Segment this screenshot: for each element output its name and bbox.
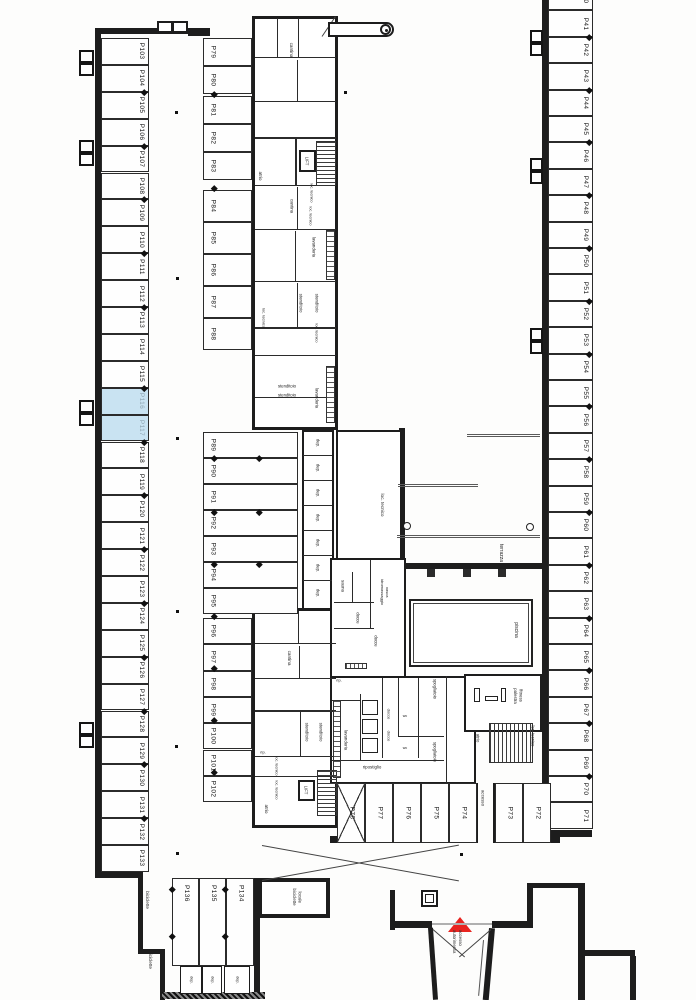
stall-P65[interactable]: P65: [548, 644, 593, 670]
stall-label: P126: [138, 662, 145, 679]
stall-P57[interactable]: P57: [548, 433, 593, 459]
room-label-rip-2: rip.: [260, 751, 266, 756]
stall-label: P43: [582, 70, 589, 83]
partition-line: [298, 611, 299, 644]
stall-P113[interactable]: P113: [101, 307, 149, 334]
stall-P118[interactable]: P118: [101, 442, 149, 469]
wall-pilaster: [530, 328, 543, 341]
stall-label: P115: [138, 366, 145, 382]
stall-label: P64: [582, 624, 589, 637]
stall-P61[interactable]: P61: [548, 538, 593, 564]
stall-P76[interactable]: P76: [393, 783, 421, 843]
stall-label: P83: [209, 160, 216, 173]
partition-line: [334, 602, 374, 603]
room-label-stenditoio-5: stenditoio: [304, 723, 309, 742]
wall-pilaster: [530, 341, 543, 354]
partition-line: [255, 355, 336, 356]
stall-label: P44: [582, 96, 589, 109]
stall-label: P75: [432, 807, 439, 820]
room-outline: [336, 430, 402, 565]
room-label-docce-4: docce: [386, 731, 391, 742]
stall-P111[interactable]: P111: [101, 253, 149, 280]
stall-P62[interactable]: P62: [548, 565, 593, 591]
partition-line: [334, 628, 374, 629]
storage-label: dep.: [315, 539, 320, 547]
room-label-biciclette-2: biciclette: [147, 951, 153, 969]
stall-label: P98: [209, 677, 216, 690]
stall-P84[interactable]: P84: [203, 190, 252, 222]
stairs: [489, 723, 533, 763]
room-label-biciclette-1: biciclette: [144, 891, 150, 909]
wall-pilaster: [79, 50, 94, 63]
stall-label: P85: [209, 232, 216, 245]
room-label-rip-1: rip.: [336, 679, 342, 684]
stall-label: P127: [138, 689, 145, 706]
partition-line: [446, 676, 447, 784]
partition-line: [303, 505, 332, 506]
room-label-loc-tecnico-8: loc. tecnico: [314, 324, 319, 343]
stall-label: P60: [582, 519, 589, 532]
stall-P90[interactable]: P90: [203, 458, 298, 484]
stall-P46[interactable]: P46: [548, 142, 593, 168]
stall-label: P80: [209, 74, 216, 87]
stall-label: P136: [182, 885, 189, 902]
stairs: [316, 141, 336, 186]
stall-P82[interactable]: P82: [203, 124, 252, 152]
stall-label: P119: [138, 474, 145, 490]
room-label-stenditoio-4: stenditoio: [278, 392, 296, 397]
stall-P96[interactable]: P96: [203, 618, 252, 644]
shelving: [326, 230, 335, 280]
stall-label: P93: [209, 543, 216, 556]
room-label-fitness: fitness palestra: [513, 688, 524, 704]
stall-label: P116: [138, 393, 145, 409]
terrace-railing: [398, 484, 478, 487]
room-label-cantina-2: cantina: [286, 651, 292, 666]
storage-label: dep.: [315, 589, 320, 597]
stall-label: P63: [582, 598, 589, 611]
column-dot: [176, 610, 179, 613]
stall-label: P114: [138, 339, 145, 355]
stall-label: P81: [209, 104, 216, 117]
stall-P123[interactable]: P123: [101, 576, 149, 603]
floor-plan: accesso autorimessa P103P104P105P106P107…: [0, 0, 696, 1000]
stall-label: P74: [460, 807, 467, 820]
stall-P59[interactable]: P59: [548, 486, 593, 512]
wall: [393, 921, 432, 928]
stall-label: P124: [138, 608, 145, 625]
room-label-piscina: piscina: [513, 622, 519, 638]
room-outline: [330, 676, 476, 784]
stall-label: P56: [582, 413, 589, 426]
stall-P88[interactable]: P88: [203, 318, 252, 350]
storage-label: dep.: [315, 489, 320, 497]
stall-label: P79: [209, 46, 216, 59]
stall-P48[interactable]: P48: [548, 195, 593, 221]
room-outline: [330, 558, 406, 678]
stall-P41[interactable]: P41: [548, 10, 593, 36]
stall-P117[interactable]: P117: [101, 415, 149, 442]
stall-P130[interactable]: P130: [101, 764, 149, 791]
stall-P60[interactable]: P60: [548, 512, 593, 538]
room-label-docce-2: docce: [373, 635, 378, 646]
stall-label: P128: [138, 716, 145, 733]
gym-equipment-icon: [485, 696, 498, 701]
room-label-locale-biciclette: locale biciclette: [292, 888, 303, 905]
room-outline: [172, 21, 188, 33]
stall-label: P102: [209, 781, 216, 798]
stall-P119[interactable]: P119: [101, 468, 149, 495]
stall-P120[interactable]: P120: [101, 495, 149, 522]
wall: [532, 883, 584, 888]
stall-label: P58: [582, 466, 589, 479]
stall-P125[interactable]: P125: [101, 630, 149, 657]
stall-label: P122: [138, 554, 145, 571]
stall-label: P61: [582, 545, 589, 558]
stall-label: P72: [534, 807, 541, 820]
stall-label: P108: [138, 178, 145, 195]
room-label-ripostiglio: ripostiglio: [363, 764, 382, 769]
stall-label: P53: [582, 334, 589, 347]
room-label-atrio-2: atrio: [475, 734, 480, 743]
wall-pilaster: [530, 158, 543, 171]
column: [526, 523, 534, 531]
stall-label: P46: [582, 149, 589, 162]
stall-label: P51: [582, 281, 589, 294]
room-label-spogliatoio-2: spogliatoio: [432, 742, 437, 762]
stall-label: P106: [138, 124, 145, 141]
wall: [630, 956, 636, 1000]
room-label-stenditoio-2: stenditoio: [314, 294, 319, 313]
partition-line: [303, 530, 332, 531]
stall-P94[interactable]: P94: [203, 562, 298, 588]
stall-P114[interactable]: P114: [101, 334, 149, 361]
partition-line: [295, 139, 297, 186]
ramp-wall: [483, 928, 495, 1000]
glass-line: [432, 923, 492, 925]
stall-P121[interactable]: P121: [101, 522, 149, 549]
stall-P43[interactable]: P43: [548, 63, 593, 89]
stall-label: P111: [138, 259, 145, 275]
partition-line: [255, 643, 336, 644]
stall-label: P59: [582, 492, 589, 505]
room-label-docce-3: docce: [386, 709, 391, 720]
bench: [345, 663, 367, 669]
stall-P107[interactable]: P107: [101, 146, 149, 173]
stall-P126[interactable]: P126: [101, 657, 149, 684]
stall-P136[interactable]: P136: [172, 878, 199, 966]
stall-P85[interactable]: P85: [203, 222, 252, 254]
stall-P75[interactable]: P75: [421, 783, 449, 843]
stall-label: P45: [582, 123, 589, 136]
partition-line: [295, 231, 296, 282]
room-label-spogliatoio-1: spogliatoio: [432, 679, 437, 699]
wall: [95, 28, 153, 34]
stall-P40[interactable]: P40: [548, 0, 593, 10]
stall-P110[interactable]: P110: [101, 226, 149, 253]
stall-label: P89: [209, 439, 216, 452]
partition-line: [370, 560, 371, 628]
stall-P68[interactable]: P68: [548, 723, 593, 749]
stall-label: P40: [582, 0, 589, 4]
room-label-lavanderia-1: lavanderia: [311, 237, 316, 257]
partition-line: [255, 101, 336, 102]
stall-P63[interactable]: P63: [548, 591, 593, 617]
stall-P132[interactable]: P132: [101, 818, 149, 845]
wall-pilaster: [79, 722, 94, 735]
room-label-loc-tecnico-1: loc. tecnico: [309, 184, 314, 203]
stall-label: P88: [209, 328, 216, 341]
stall-P80[interactable]: P80: [203, 66, 252, 94]
stall-P105[interactable]: P105: [101, 92, 149, 119]
stall-label: P110: [138, 232, 145, 248]
column-dot: [175, 745, 178, 748]
column-dot: [175, 111, 178, 114]
stall-label: P49: [582, 228, 589, 241]
stall-label: P96: [209, 625, 216, 638]
stall-P109[interactable]: P109: [101, 199, 149, 226]
stall-label: P133: [138, 850, 145, 867]
stall-label: P87: [209, 296, 216, 309]
stall-P50[interactable]: P50: [548, 248, 593, 274]
stall-label: P130: [138, 769, 145, 786]
stall-P58[interactable]: P58: [548, 459, 593, 485]
stall-P45[interactable]: P45: [548, 116, 593, 142]
shower-stall: [362, 719, 378, 734]
room-label-cantina-3: cantina: [289, 199, 294, 213]
stall-label: P121: [138, 527, 145, 544]
stall-label: P105: [138, 97, 145, 114]
stall-P87[interactable]: P87: [203, 286, 252, 318]
stall-label: P47: [582, 176, 589, 189]
stall-P55[interactable]: P55: [548, 380, 593, 406]
wall-pilaster: [79, 153, 94, 166]
stall-P47[interactable]: P47: [548, 169, 593, 195]
room-label-stenditoio-3: stenditoio: [278, 383, 296, 388]
stall-P69[interactable]: P69: [548, 750, 593, 776]
stall-P129[interactable]: P129: [101, 737, 149, 764]
partition-line: [298, 18, 299, 58]
stall-P86[interactable]: P86: [203, 254, 252, 286]
room-label-lift-2: LIFT: [303, 786, 308, 795]
pool-pilaster: [463, 569, 471, 577]
stall-label: P95: [209, 595, 216, 608]
stall-P108[interactable]: P108: [101, 173, 149, 200]
partition-line: [303, 555, 332, 556]
stall-P42[interactable]: P42: [548, 37, 593, 63]
stall-label: P100: [209, 728, 216, 745]
stall-label: P125: [138, 635, 145, 652]
partition-line: [297, 187, 298, 230]
room-label-stenditoio-1: stenditoio: [298, 294, 303, 313]
stall-label: P131: [138, 796, 145, 813]
stall-P135[interactable]: P135: [199, 878, 226, 966]
room-outline: [425, 894, 434, 903]
stall-P106[interactable]: P106: [101, 119, 149, 146]
stall-P112[interactable]: P112: [101, 280, 149, 307]
storage-label: dep.: [315, 514, 320, 522]
partition-line: [297, 60, 298, 102]
column-dot: [176, 437, 179, 440]
storage-label: dep.: [315, 464, 320, 472]
room-label-lavanderia-2: lavanderia: [314, 388, 319, 408]
wall-pilaster: [530, 171, 543, 184]
pool-pilaster: [427, 569, 435, 577]
room-label-docce-1: docce: [355, 612, 360, 623]
room-label-loc-tecnico-2: loc. tecnico: [308, 207, 313, 226]
stall-P97[interactable]: P97: [203, 644, 252, 670]
storage-label: dep.: [315, 439, 320, 447]
stall-label: P73: [506, 807, 513, 820]
stall-P92[interactable]: P92: [203, 510, 298, 536]
stall-label: P50: [582, 255, 589, 268]
ramp-tube-axle: [385, 29, 388, 32]
column-dot: [460, 853, 463, 856]
stall-P104[interactable]: P104: [101, 65, 149, 92]
shelving: [333, 700, 341, 778]
gym-equipment-icon: [474, 688, 480, 702]
stall-label: P52: [582, 308, 589, 321]
stall-P79[interactable]: P79: [203, 38, 252, 66]
stall-P100[interactable]: P100: [203, 723, 252, 749]
stall-P56[interactable]: P56: [548, 406, 593, 432]
room-label-lavanderia-3: lavanderia: [343, 730, 348, 750]
storage-label: dep.: [315, 564, 320, 572]
stall-P124[interactable]: P124: [101, 603, 149, 630]
room-label-terrazza: terrazza: [498, 544, 504, 562]
stall-label: P41: [582, 17, 589, 30]
no-parking-cross: [337, 783, 365, 843]
partition-line: [382, 678, 383, 758]
column-dot: [176, 852, 179, 855]
partition-line: [299, 646, 300, 679]
stall-P133[interactable]: P133: [101, 845, 149, 872]
partition-line: [300, 712, 301, 757]
stall-P83[interactable]: P83: [203, 152, 252, 180]
partition-line: [303, 455, 332, 456]
room-label-loc-tecnico-3: loc. tecnico: [261, 308, 266, 328]
wall-pilaster: [79, 413, 94, 426]
wall: [402, 563, 542, 569]
stall-P93[interactable]: P93: [203, 536, 298, 562]
shower-stall: [362, 738, 378, 753]
column-dot: [176, 277, 179, 280]
stall-P64[interactable]: P64: [548, 618, 593, 644]
room-label-vasca: vasca idromassaggio: [379, 579, 389, 605]
room-label-cantina-1: cantina: [288, 43, 294, 58]
stall-label: P104: [138, 70, 145, 87]
stall-P81[interactable]: P81: [203, 96, 252, 124]
partition-line: [277, 18, 278, 58]
stall-P77[interactable]: P77: [365, 783, 393, 843]
wall: [578, 883, 585, 1000]
stall-label: P42: [582, 44, 589, 57]
stall-P73[interactable]: P73: [495, 783, 523, 843]
stall-P134[interactable]: P134: [226, 878, 254, 966]
stall-label: P97: [209, 651, 216, 664]
stall-P103[interactable]: P103: [101, 38, 149, 65]
stall-P116[interactable]: P116: [101, 388, 149, 415]
partition-line: [303, 480, 332, 481]
wall: [492, 921, 528, 928]
stall-P74[interactable]: P74: [449, 783, 477, 843]
wall: [585, 950, 635, 956]
room-label-loc-tecnico-6: loc. tecnico: [274, 757, 279, 776]
stall-P115[interactable]: P115: [101, 361, 149, 388]
stall-P53[interactable]: P53: [548, 327, 593, 353]
stall-P91[interactable]: P91: [203, 484, 298, 510]
wall: [95, 872, 143, 878]
wall: [188, 29, 210, 36]
stall-P127[interactable]: P127: [101, 684, 149, 711]
terrace-railing: [467, 434, 540, 437]
stall-label: P76: [404, 807, 411, 820]
stall-P44[interactable]: P44: [548, 90, 593, 116]
stall-label: P112: [138, 285, 145, 301]
stall-label: P120: [138, 500, 145, 517]
stall-P67[interactable]: P67: [548, 697, 593, 723]
stall-P102[interactable]: P102: [203, 776, 252, 802]
stall-P54[interactable]: P54: [548, 354, 593, 380]
room-label-loc-tecnico-7: loc. tecnico: [274, 781, 279, 800]
stall-P51[interactable]: P51: [548, 274, 593, 300]
partition-line: [398, 736, 444, 737]
stall-label: P68: [582, 730, 589, 743]
stall-label: P109: [138, 204, 145, 221]
stall-label: P77: [376, 807, 383, 820]
wall-pilaster: [530, 43, 543, 56]
stall-P131[interactable]: P131: [101, 791, 149, 818]
stall-label: P70: [582, 783, 589, 796]
stall-label: P90: [209, 465, 216, 478]
partition-line: [255, 710, 336, 712]
stall-label: P62: [582, 572, 589, 585]
stall-P128[interactable]: P128: [101, 711, 149, 738]
stall-label: P66: [582, 677, 589, 690]
stall-P66[interactable]: P66: [548, 670, 593, 696]
stall-P95[interactable]: P95: [203, 588, 298, 614]
stall-label: P67: [582, 704, 589, 717]
stall-label: P118: [138, 447, 145, 463]
stall-P89[interactable]: P89: [203, 432, 298, 458]
room-label-loc-tecnico-4: loc. tecnico: [379, 494, 385, 517]
column-dot: [344, 91, 347, 94]
stall-P49[interactable]: P49: [548, 222, 593, 248]
stall-P122[interactable]: P122: [101, 549, 149, 576]
stall-P70[interactable]: P70: [548, 776, 593, 802]
room-label-loc-tecnico-5: loc. tecnico: [530, 726, 535, 747]
stall-P52[interactable]: P52: [548, 301, 593, 327]
room-label-stenditoio-6: stenditoio: [318, 723, 323, 742]
gym-equipment-icon: [501, 688, 506, 702]
terrace-railing: [397, 535, 540, 538]
room-label-atrio-1: atrio: [257, 172, 263, 181]
stall-label: P82: [209, 132, 216, 145]
room-label-accesso: accesso: [480, 790, 485, 806]
room-label-sauna: sauna: [340, 580, 345, 592]
wall-pilaster: [79, 735, 94, 748]
stall-label: P113: [138, 312, 145, 328]
stall-label: P123: [138, 581, 145, 598]
stall-P71[interactable]: P71: [548, 802, 593, 828]
wall: [138, 874, 143, 954]
partition-line: [352, 572, 353, 603]
stall-label: P132: [138, 823, 145, 840]
stall-P98[interactable]: P98: [203, 671, 252, 697]
partition-line: [418, 678, 419, 758]
stall-label: P91: [209, 491, 216, 504]
stall-P72[interactable]: P72: [523, 783, 551, 843]
